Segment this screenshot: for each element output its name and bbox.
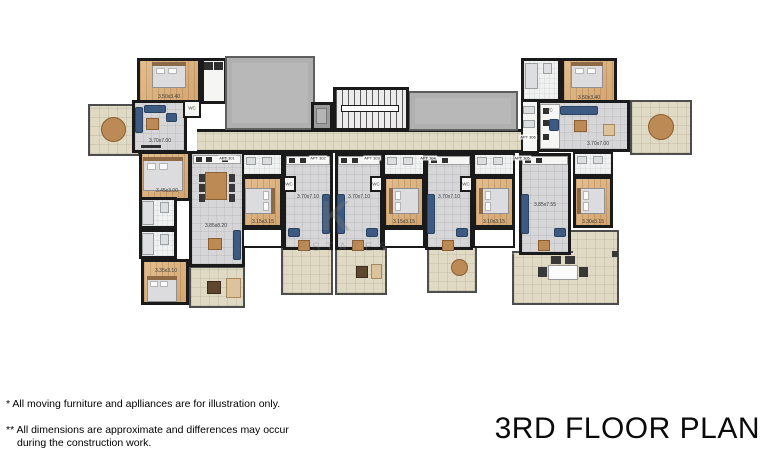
bed-pillow [156,68,165,74]
bed-pillow [263,202,269,211]
bed [577,188,605,214]
round-table [648,114,674,140]
void-unit1 [242,228,283,248]
appliance-icon [289,158,295,163]
terrace-chair [565,256,575,264]
terrace-chair [551,256,561,264]
bath-fixture [593,156,603,164]
sofa [521,194,529,234]
pouf [603,124,615,136]
bed-pillow [575,68,584,74]
dining-chair [229,194,235,202]
appliance-icon [206,157,212,162]
appliance-icon [536,158,542,163]
coffee-table [146,118,159,130]
apartment-number-label: APT 306 [519,135,537,140]
appliance-icon [300,158,306,163]
appliance-icon [341,158,347,163]
appliance-icon [196,157,202,162]
roof-void-right [408,91,518,131]
terrace-chair [538,267,547,277]
sofa [427,194,435,234]
bed-headboard [271,188,275,214]
dining-chair [199,194,205,202]
void-unit3 [473,228,515,248]
bed-pillow [587,68,596,74]
sofa [233,230,241,260]
bed-pillow [395,202,401,211]
round-table [101,117,126,142]
pouf [442,240,454,251]
bed-headboard [479,188,483,214]
toilet [160,234,169,245]
balcony-seat [226,278,241,298]
bath-fixture [523,106,535,114]
balcony-unit1 [281,248,333,295]
room-dimension-label: 3.45x3.00 [156,188,178,194]
dining-chair [199,184,205,192]
watermark-text: ESTATES [298,240,393,254]
note-furniture: * All moving furniture and aplliances ar… [6,398,280,410]
roof-void-left [225,56,315,130]
bed-pillow [147,163,156,170]
bathtub [142,201,154,225]
room-dimension-label: 3.70x7.00 [149,138,171,144]
appliance-icon [442,158,448,163]
bed-pillow [160,281,168,287]
apartment-number-label: APT 302 [309,156,327,161]
apartment-number-label: APT 303 [363,156,381,161]
armchair [166,113,177,122]
wc-label: WC [372,182,380,187]
bed [389,188,419,214]
bed-pillow [168,68,177,74]
wc-label: WC [285,182,293,187]
note-dimensions: ** All dimensions are approximate and di… [6,424,289,436]
room-dimension-label: 3.70x7.10 [297,194,319,200]
apartment-number-label: APT 305 [513,156,531,161]
sofa [560,106,598,115]
room-dimension-label: 3.10x3.15 [483,219,505,225]
bathtub [142,233,154,255]
tv-console [141,145,161,148]
appliance-icon [543,120,549,126]
room-dimension-label: 3.70x7.00 [587,141,609,147]
elevator-car [316,108,327,124]
bed-headboard [577,188,581,214]
balcony-seat [371,264,382,279]
bed-pillow [263,191,269,200]
stair-handrail [341,105,399,112]
room-dimension-label: 3.35x3.10 [155,268,177,274]
room-dimension-label: 3.15x3.15 [252,219,274,225]
wardrobe-icon [204,62,213,70]
sofa [144,105,166,113]
bed-pillow [395,191,401,200]
bed-pillow [583,191,589,200]
terrace-chair [579,267,588,277]
round-table [451,259,468,276]
terrace-pillar [612,251,618,257]
room-dimension-label: 3.30x3.15 [582,219,604,225]
room-dimension-label: 3.15x3.15 [393,219,415,225]
bed-pillow [159,163,168,170]
corridor [197,129,537,153]
bath-fixture [246,157,256,165]
pouf [208,238,222,250]
bath-fixture [262,157,272,165]
terrace-dining-table [548,265,578,280]
wardrobe-icon [214,62,223,70]
page-title: 3RD FLOOR PLAN [495,412,760,446]
floor-plan-page: K ESTATES 3.50x3.403.70x7.003.45x3.003.8… [0,0,768,460]
pouf [574,120,587,132]
bed-headboard [152,62,186,66]
armchair [288,228,300,237]
sofa [135,107,143,133]
bath-fixture [523,120,535,128]
appliance-icon [543,134,549,140]
bed [479,188,509,214]
bath-fixture [477,157,487,165]
balcony-table [207,281,221,294]
bed-headboard [147,276,177,280]
armchair [549,119,559,131]
dining-chair [199,174,205,182]
bed-pillow [485,191,491,200]
bathtub [525,63,538,89]
room-dimension-label: 3.50x3.40 [578,95,600,101]
bed-pillow [583,202,589,211]
watermark-letter: K [320,192,350,240]
bed-pillow [485,202,491,211]
room-dimension-label: 3.50x3.40 [158,94,180,100]
apartment-number-label: APT 301 [218,156,236,161]
dining-table [205,172,227,200]
floor-plan: K ESTATES 3.50x3.403.70x7.003.45x3.003.8… [0,0,768,460]
bath-fixture [577,156,587,164]
room-dimension-label: 3.85x7.55 [534,202,556,208]
pouf [538,240,550,251]
apartment-number-label: APT 304 [419,156,437,161]
bed-headboard [143,157,183,161]
armchair [456,228,468,237]
bed-headboard [389,188,393,214]
room-dimension-label: 3.70x7.10 [438,194,460,200]
bath-fixture [493,157,503,165]
wc-label: WC [462,182,470,187]
wc-label: WC [188,106,196,111]
appliance-icon [352,158,358,163]
toilet [160,202,169,213]
bed-pillow [150,281,158,287]
room-dimension-label: 3.70x7.10 [348,194,370,200]
dining-chair [229,184,235,192]
armchair [366,228,378,237]
wc-label: WC [545,108,553,113]
room-dimension-label: 3.85x8.20 [205,223,227,229]
dining-chair [229,174,235,182]
armchair [554,228,566,237]
bath-fixture [403,157,413,165]
bath-fixture [387,157,397,165]
toilet [543,63,552,74]
note-dimensions-line2: during the construction work. [17,437,151,449]
balcony-table [356,266,368,278]
bed-headboard [571,62,603,66]
